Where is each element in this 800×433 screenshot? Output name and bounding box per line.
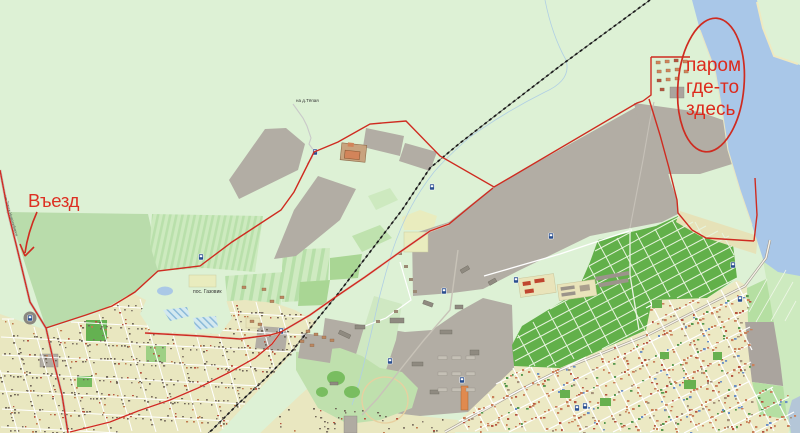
svg-text:паром: паром — [686, 55, 741, 76]
svg-text:здесь: здесь — [686, 99, 735, 120]
svg-text:на д.Тёпая: на д.Тёпая — [296, 98, 319, 103]
svg-text:Въезд: Въезд — [28, 190, 80, 211]
svg-text:где-то: где-то — [686, 77, 739, 98]
svg-text:пос. Газовик: пос. Газовик — [193, 289, 222, 295]
